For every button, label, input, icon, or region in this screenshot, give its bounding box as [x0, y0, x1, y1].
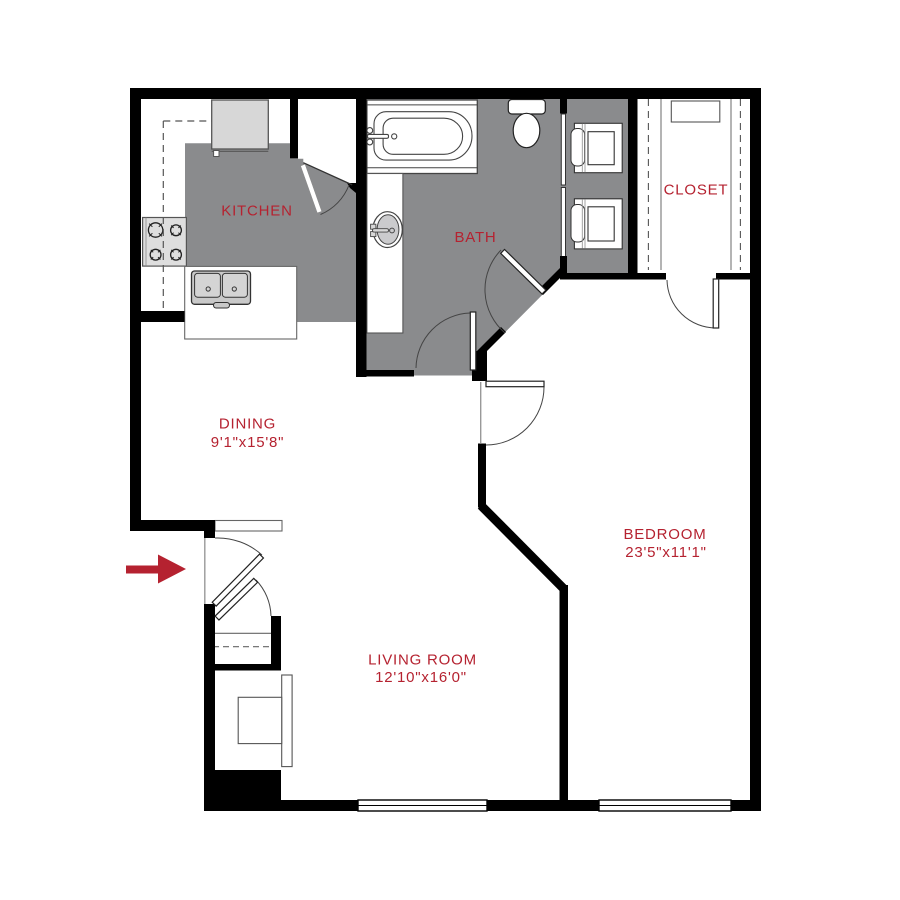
svg-text:DINING: DINING: [219, 416, 276, 433]
svg-text:23'5"x11'1": 23'5"x11'1": [625, 544, 707, 561]
svg-text:BATH: BATH: [454, 229, 496, 246]
svg-text:BEDROOM: BEDROOM: [623, 526, 706, 543]
svg-text:KITCHEN: KITCHEN: [221, 203, 292, 220]
svg-text:CLOSET: CLOSET: [664, 182, 729, 199]
svg-text:LIVING ROOM: LIVING ROOM: [368, 652, 477, 669]
svg-text:9'1"x15'8": 9'1"x15'8": [211, 434, 285, 451]
svg-text:12'10"x16'0": 12'10"x16'0": [375, 669, 467, 686]
